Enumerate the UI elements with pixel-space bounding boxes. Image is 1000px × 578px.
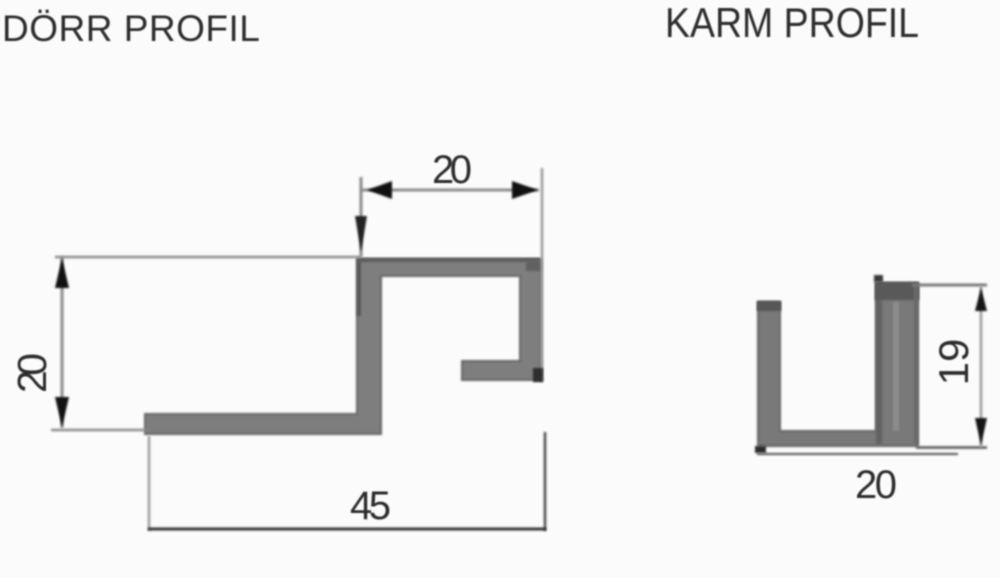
svg-text:45: 45 — [350, 484, 391, 528]
svg-text:19: 19 — [930, 339, 977, 386]
svg-text:DÖRR PROFIL: DÖRR PROFIL — [2, 8, 260, 49]
svg-text:20: 20 — [9, 353, 55, 393]
svg-text:KARM PROFIL: KARM PROFIL — [665, 0, 919, 46]
svg-text:20: 20 — [432, 148, 472, 192]
svg-text:20: 20 — [855, 463, 897, 507]
